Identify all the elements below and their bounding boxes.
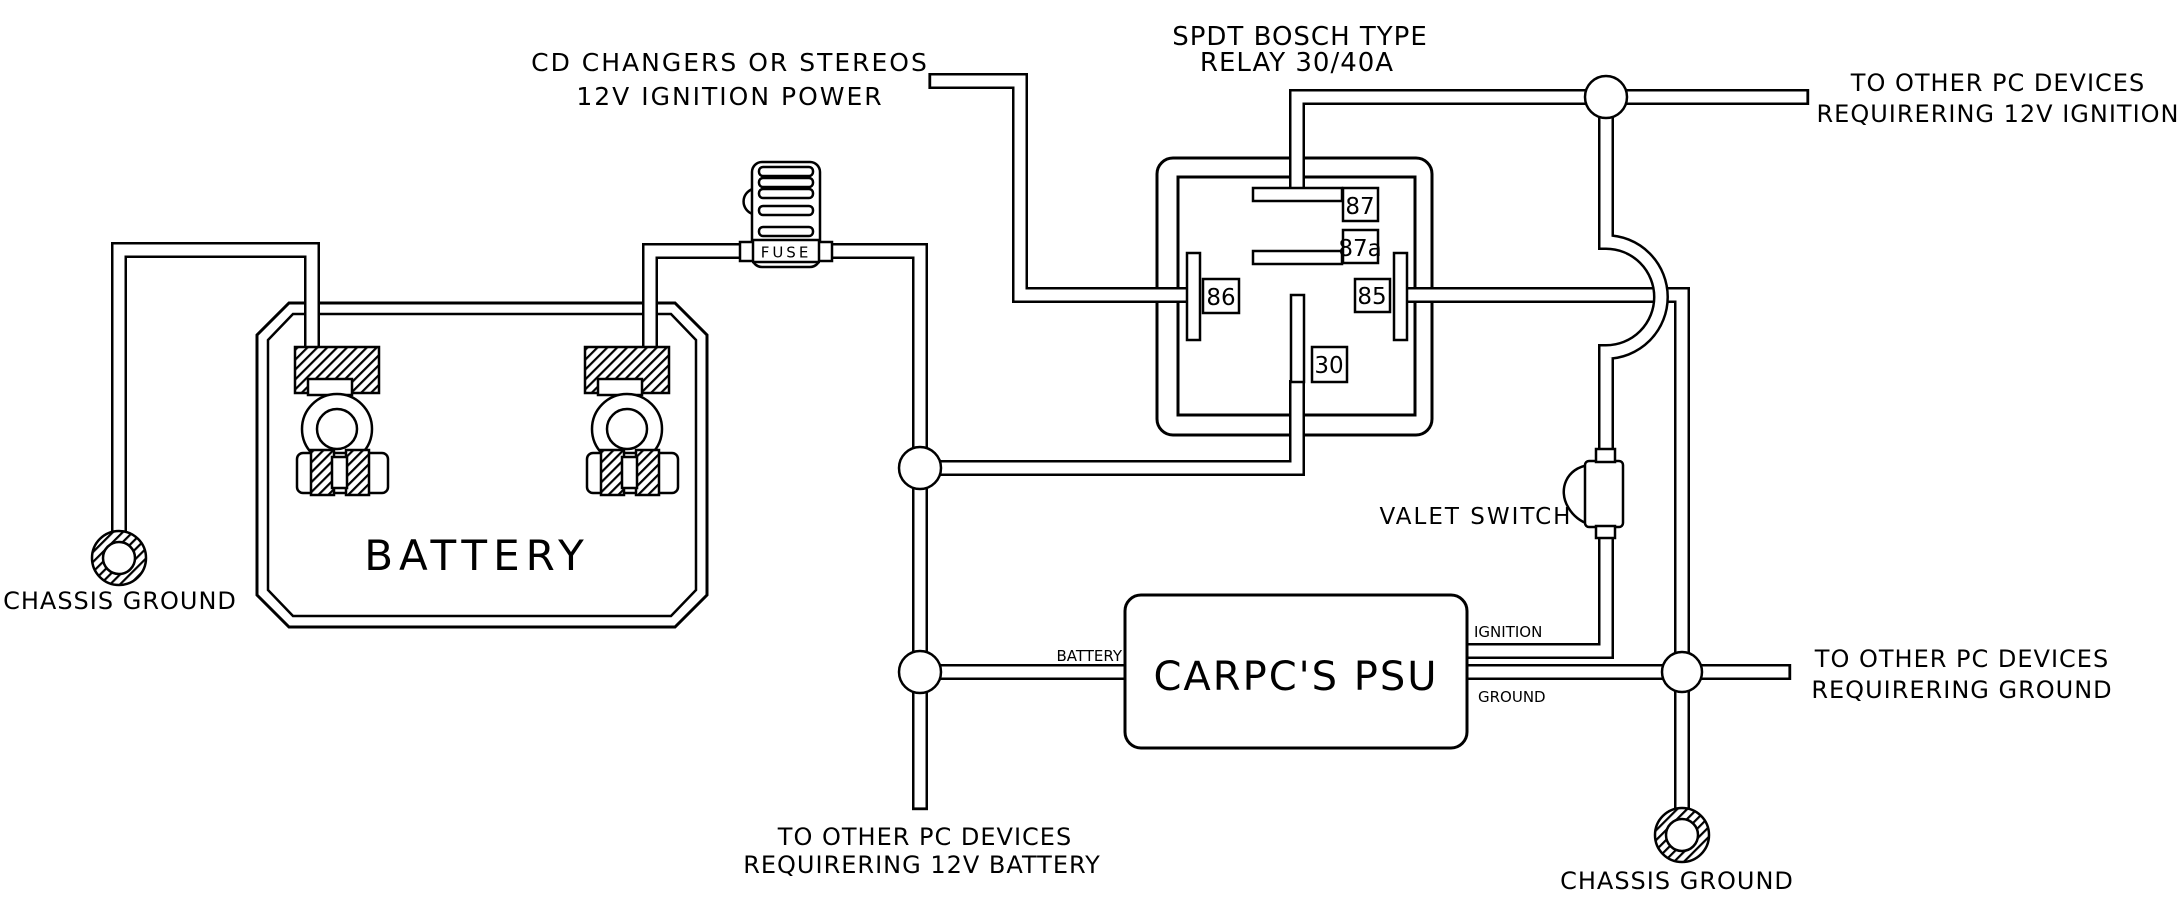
relay-pin-30-label: 30 — [1314, 353, 1343, 379]
fuse-holder: FUSE — [740, 162, 832, 267]
wire-ignition-hop-core — [1606, 97, 1661, 452]
relay-title-line2: RELAY 30/40A — [1200, 48, 1394, 78]
wire-cd-to-relay-86 — [930, 81, 1189, 295]
psu-ground-terminal-label: GROUND — [1478, 688, 1546, 706]
wiring-diagram: 87 87a 86 85 30 FUSE — [0, 0, 2177, 910]
ground-ring-inner — [1666, 819, 1698, 851]
valet-switch-bottom-terminal — [1596, 526, 1615, 538]
ground-devices-label-line2: REQUIRERING GROUND — [1811, 676, 2112, 704]
relay-pin-87-label: 87 — [1345, 194, 1374, 220]
psu-box: CARPC'S PSU — [1125, 595, 1467, 748]
relay-pin-86-blade — [1187, 253, 1200, 340]
chassis-ground-left-label: CHASSIS GROUND — [3, 587, 237, 615]
wire-cd-to-relay-86-core — [930, 81, 1189, 295]
fuse-rib — [759, 178, 813, 187]
ignition-devices-label-line1: TO OTHER PC DEVICES — [1850, 69, 2145, 97]
fuse-tab-left — [740, 242, 753, 261]
relay-pin-85-label: 85 — [1357, 284, 1386, 310]
junction-ground-bus — [1662, 652, 1702, 692]
fuse-tab-right — [819, 242, 832, 261]
valet-switch-top-terminal — [1596, 449, 1615, 462]
relay-pin-87-blade — [1253, 188, 1342, 201]
relay-pin-85-blade — [1394, 253, 1407, 340]
fuse-rib — [759, 189, 813, 198]
fuse-rib — [759, 206, 813, 215]
valet-switch-label: VALET SWITCH — [1380, 504, 1573, 530]
battery-devices-label-line1: TO OTHER PC DEVICES — [777, 823, 1072, 851]
junction-ignition-bus — [1585, 76, 1627, 118]
cap-ground-stub-end — [1788, 664, 1791, 680]
fuse-rib — [759, 227, 813, 236]
chassis-ground-right-symbol — [1655, 808, 1709, 862]
ground-devices-label-line1: TO OTHER PC DEVICES — [1814, 645, 2109, 673]
battery-devices-label-line2: REQUIRERING 12V BATTERY — [743, 851, 1101, 879]
junction-main-psu — [899, 651, 941, 693]
relay-pin-30-blade — [1291, 295, 1304, 382]
ignition-devices-label-line2: REQUIRERING 12V IGNITION — [1816, 100, 2177, 128]
chassis-ground-left-symbol — [92, 531, 146, 585]
wire-fuse-to-main-core — [827, 251, 920, 810]
battery-label: BATTERY — [364, 531, 590, 580]
cap-ignition-stub-end — [1806, 89, 1809, 105]
relay-pin-87a-label: 87a — [1338, 236, 1381, 262]
relay-pin-87a-blade — [1253, 251, 1342, 264]
junction-main-relay30 — [899, 447, 941, 489]
psu-ignition-terminal-label: IGNITION — [1474, 623, 1542, 641]
wiring-diagram-canvas: 87 87a 86 85 30 FUSE — [0, 0, 2177, 910]
fuse-rib — [759, 167, 813, 176]
fuse-label: FUSE — [761, 244, 812, 262]
cd-power-label-line2: 12V IGNITION POWER — [576, 82, 883, 111]
valet-switch — [1564, 449, 1623, 538]
cap-battery-stub-end — [912, 807, 928, 810]
psu-label: CARPC'S PSU — [1153, 654, 1438, 700]
wire-fuse-to-main — [827, 251, 920, 810]
valet-switch-body — [1585, 461, 1623, 527]
ground-ring-inner — [103, 542, 135, 574]
cd-power-label-line1: CD CHANGERS OR STEREOS — [531, 48, 929, 77]
psu-battery-terminal-label: BATTERY — [1056, 647, 1122, 665]
chassis-ground-right-label: CHASSIS GROUND — [1560, 867, 1794, 895]
relay-pin-86-label: 86 — [1206, 285, 1235, 311]
